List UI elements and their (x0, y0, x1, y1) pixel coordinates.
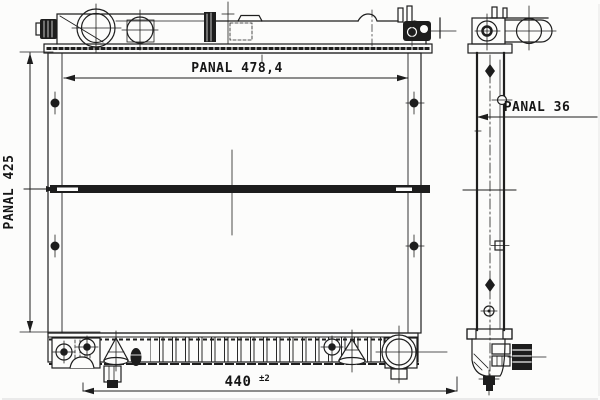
side-view: PANAL 36 (463, 6, 597, 395)
side-tank-hatch (474, 354, 488, 370)
dim-arrowhead (446, 388, 457, 394)
center-band (24, 185, 430, 193)
hidden-line-box (230, 23, 252, 40)
dim-mount-tolerance-label: ±2 (259, 374, 270, 384)
dim-core-width-label: PANAL 478,4 (191, 61, 283, 76)
left-fitting-body (40, 19, 57, 39)
drain-tip (107, 380, 118, 388)
dim-mount-width: 440 ±2 (83, 374, 457, 394)
side-bottom-tank (467, 329, 546, 395)
bracket-prong (492, 7, 497, 18)
sensor-boss (131, 348, 142, 366)
side-drain-plug (479, 370, 499, 395)
dim-core-depth: PANAL 36 (477, 100, 597, 120)
outlet-fitting-hole (420, 25, 428, 33)
center-band-bar (50, 185, 430, 193)
left-fitting (36, 19, 57, 39)
bracket-prong (407, 6, 412, 22)
dim-arrowhead (83, 388, 94, 394)
flange-end (467, 329, 476, 339)
side-bottom-flange (467, 329, 512, 339)
side-top-tank (468, 6, 556, 53)
side-header-flange (468, 44, 512, 53)
tank-top-bump (358, 14, 398, 21)
side-pipe-block (492, 356, 510, 366)
center-band-slot (396, 188, 412, 192)
drain-plug-left (104, 366, 121, 388)
radiator-drawing: PANAL 478,4 PANAL 425 440 ±2 (0, 0, 600, 400)
outlet-port-bottom (376, 326, 447, 383)
side-rivet (481, 306, 497, 316)
front-view: PANAL 478,4 PANAL 425 440 ±2 (2, 2, 457, 394)
left-mount-bracket (52, 336, 100, 368)
dim-core-depth-label: PANAL 36 (504, 100, 571, 115)
dim-arrowhead (64, 75, 75, 81)
rivet (51, 235, 60, 257)
top-bracket (204, 12, 216, 42)
dim-arrowhead (477, 114, 488, 120)
dim-arrowhead (27, 321, 33, 332)
dim-arrowhead (397, 75, 408, 81)
side-pipe-block (492, 344, 510, 354)
bracket-prong (398, 8, 403, 22)
top-tank (36, 2, 456, 53)
drawing-canvas: PANAL 478,4 PANAL 425 440 ±2 (0, 0, 600, 400)
drain-body (104, 366, 121, 382)
diamond-marker (485, 278, 495, 292)
bracket-prong (503, 8, 507, 18)
dim-mount-width-label: 440 (225, 374, 252, 390)
side-inlet-pipe (505, 6, 556, 50)
dim-arrowhead (27, 53, 33, 64)
side-pipe-hatch (497, 356, 502, 366)
diamond-marker (485, 64, 495, 78)
tank-tab (238, 16, 262, 22)
filler-neck (72, 4, 121, 52)
dim-core-width: PANAL 478,4 (64, 55, 408, 81)
rivet (51, 92, 60, 114)
outlet-fitting-top (398, 6, 456, 46)
center-band-slot (57, 188, 78, 192)
dim-core-height-label: PANAL 425 (2, 155, 17, 230)
side-outlet-pipe (508, 344, 546, 370)
